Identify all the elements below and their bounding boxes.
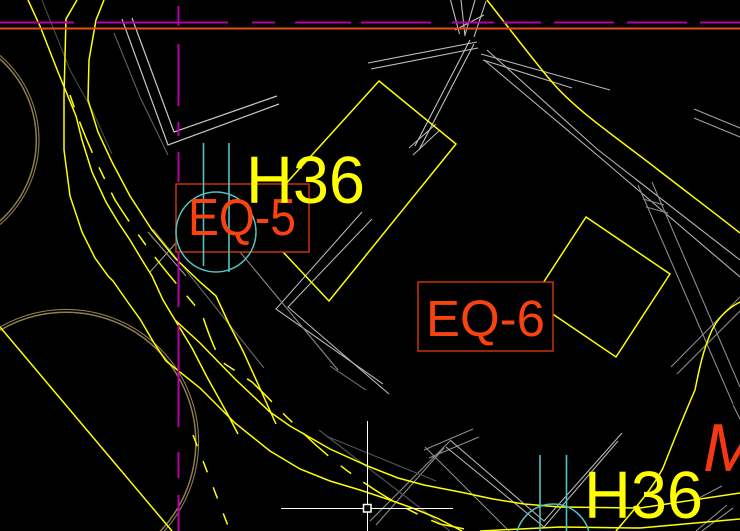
svg-text:H36: H36	[246, 143, 365, 218]
svg-text:H36: H36	[584, 458, 703, 531]
svg-text:EQ-6: EQ-6	[426, 290, 545, 347]
svg-text:M: M	[703, 410, 740, 486]
